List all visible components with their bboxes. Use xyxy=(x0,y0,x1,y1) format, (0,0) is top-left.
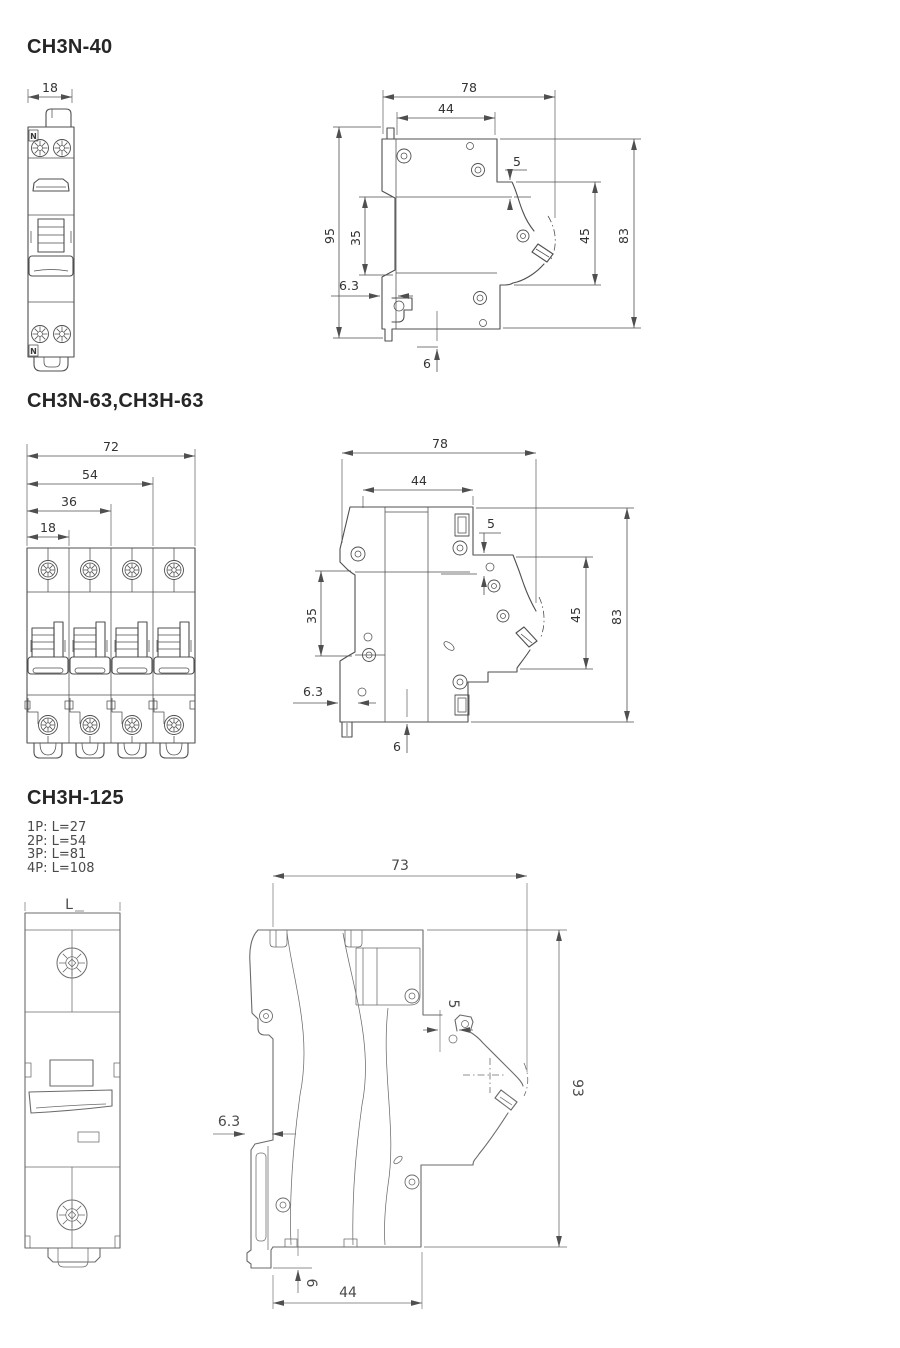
dimension-35: 35 xyxy=(348,197,393,275)
dim-83-label: 83 xyxy=(609,609,624,625)
dim-73-label: 73 xyxy=(391,858,409,874)
terminal-screw-icon xyxy=(54,326,71,343)
housing-seam xyxy=(287,933,304,1245)
dimension-18: 18 xyxy=(28,80,72,103)
neutral-label-bottom: N xyxy=(30,347,37,356)
dimension-6-3: 6.3 xyxy=(213,1114,296,1134)
toggle-handle xyxy=(29,1090,112,1113)
ch3h-125-side-view-drawing: 73 93 5 6.3 6 44 xyxy=(213,858,611,1316)
dimension-45: 45 xyxy=(514,182,601,285)
section-title-ch3h-125: CH3H-125 xyxy=(27,787,124,810)
pole-length-notes: 1P: L=27 2P: L=54 3P: L=81 4P: L=108 xyxy=(27,821,95,875)
dim-78-label: 78 xyxy=(461,80,477,95)
dim-83-label: 83 xyxy=(616,228,631,244)
dim-5-label: 5 xyxy=(487,516,495,531)
dim-35-label: 35 xyxy=(348,230,363,246)
dim-44-label: 44 xyxy=(438,101,454,116)
dim-36-label: 36 xyxy=(61,494,77,509)
vent-slot xyxy=(442,640,455,652)
terminal-screw-icon xyxy=(123,561,142,580)
breaker-side-outline xyxy=(382,128,555,341)
din-rail-clip xyxy=(247,930,273,1268)
dim-45-label: 45 xyxy=(568,607,583,623)
terminal-screw-icon xyxy=(54,140,71,157)
dim-18-label: 18 xyxy=(40,520,56,535)
dimension-L: L xyxy=(25,897,120,913)
section-title-ch3n-40: CH3N-40 xyxy=(27,36,112,59)
terminal-screw-icon xyxy=(39,561,58,580)
terminal-screw-icon xyxy=(123,716,142,735)
bottom-terminal xyxy=(48,1248,100,1262)
dim-93-label: 93 xyxy=(569,1079,585,1097)
ch3h-125-front-view-drawing: L xyxy=(14,896,126,1278)
dimension-6: 6 xyxy=(417,311,438,372)
note-line: 4P: L=108 xyxy=(27,862,95,876)
dim-6-label: 6 xyxy=(423,356,431,371)
dimension-6: 6 xyxy=(273,1229,319,1293)
dim-95-label: 95 xyxy=(322,228,337,244)
label-window xyxy=(33,179,69,191)
dim-6-3-label: 6.3 xyxy=(218,1114,240,1130)
breaker-front-outline: N N xyxy=(28,109,74,371)
terminal-screw-icon xyxy=(32,326,49,343)
dimension-83: 83 xyxy=(500,139,641,328)
toggle-handle xyxy=(29,256,73,276)
dim-78-label: 78 xyxy=(432,437,448,451)
note-line: 2P: L=54 xyxy=(27,835,95,849)
dimension-6-3: 6.3 xyxy=(293,684,376,703)
dim-72-label: 72 xyxy=(103,439,119,454)
dim-5-label: 5 xyxy=(445,1000,461,1009)
dim-6-label: 6 xyxy=(393,739,401,754)
dimension-93: 93 xyxy=(424,930,585,1247)
ch3n-40-front-view-drawing: 18 N N xyxy=(16,80,120,378)
dim-54-label: 54 xyxy=(82,467,98,482)
dimension-73: 73 xyxy=(273,858,527,1072)
pole-module xyxy=(28,548,68,758)
ch3n-63-side-view-drawing: 78 44 35 45 83 5 xyxy=(288,437,660,767)
terminal-screw-icon xyxy=(81,561,100,580)
dim-45-label: 45 xyxy=(577,228,592,244)
dim-6-3-label: 6.3 xyxy=(339,278,359,293)
pole-module xyxy=(70,548,110,758)
breaker-side-outline xyxy=(340,507,544,737)
dim-6-3-label: 6.3 xyxy=(303,684,323,699)
dimension-18: 18 xyxy=(27,520,69,546)
ch3n-40-side-view-drawing: 78 44 95 35 45 83 xyxy=(322,72,658,384)
pole-module xyxy=(112,548,152,758)
bottom-clip xyxy=(34,357,68,371)
dimension-5: 5 xyxy=(423,1000,473,1052)
breaker-front-outline xyxy=(25,913,120,1267)
terminal-screw-icon xyxy=(39,716,58,735)
housing-seam xyxy=(343,933,365,1245)
section-title-ch3n-63: CH3N-63,CH3H-63 xyxy=(27,390,204,413)
dimension-83: 83 xyxy=(471,508,634,722)
dimension-6-3: 6.3 xyxy=(331,278,413,296)
housing-seam xyxy=(384,1008,390,1245)
dimension-45: 45 xyxy=(516,557,593,669)
breaker-body xyxy=(28,127,74,357)
terminal-cavity xyxy=(356,948,420,1005)
toggle-arc-centerline xyxy=(539,597,544,639)
toggle-lever xyxy=(516,627,537,647)
ch3n-63-front-view-drawing: 72 54 36 18 xyxy=(16,437,212,769)
dim-5-label: 5 xyxy=(513,154,521,169)
status-window xyxy=(78,1132,99,1142)
dimension-44: 44 xyxy=(397,101,495,135)
dimension-35: 35 xyxy=(304,571,352,656)
dimension-44: 44 xyxy=(273,1252,422,1309)
terminal-screw-icon xyxy=(165,716,184,735)
toggle-block xyxy=(50,1060,93,1086)
dimension-78: 78 xyxy=(342,437,536,603)
terminal-screw-icon xyxy=(32,140,49,157)
top-clip xyxy=(46,109,71,127)
terminal-screw-icon xyxy=(165,561,184,580)
datasheet-page: CH3N-40 18 N N xyxy=(0,0,900,1348)
neutral-label-top: N xyxy=(30,132,37,141)
dim-L-label: L xyxy=(65,897,73,913)
dimension-44: 44 xyxy=(363,473,473,508)
note-line: 1P: L=27 xyxy=(27,821,95,835)
toggle-lever xyxy=(495,1090,517,1110)
note-line: 3P: L=81 xyxy=(27,848,95,862)
toggle-block xyxy=(38,219,64,252)
dim-6-label: 6 xyxy=(303,1279,319,1288)
breaker-4pole-outline xyxy=(25,548,195,743)
dim-44-label: 44 xyxy=(411,473,427,488)
terminal-screw-icon xyxy=(81,716,100,735)
pole-module xyxy=(154,548,194,758)
dim-18-label: 18 xyxy=(42,80,58,95)
breaker-side-outline xyxy=(247,930,528,1268)
toggle-pivot-centerline xyxy=(463,1058,528,1096)
dim-35-label: 35 xyxy=(304,608,319,624)
dim-44-label: 44 xyxy=(339,1285,357,1301)
